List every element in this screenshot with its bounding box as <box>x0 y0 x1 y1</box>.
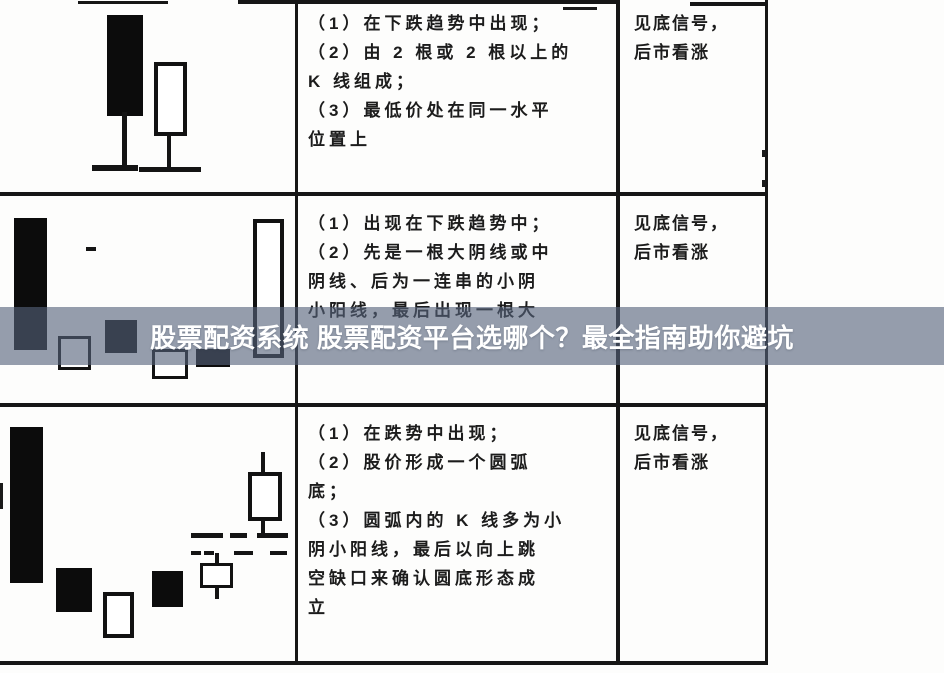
pattern-description: （1）在下跌趋势中出现；（2）由 2 根或 2 根以上的K 线组成；（3）最低价… <box>308 9 572 154</box>
pattern-description-line: （1）出现在下跌趋势中； <box>308 209 552 238</box>
pattern-description-line: （2）股价形成一个圆弧 <box>308 448 565 477</box>
pattern-description-line: 阴小阳线，最后以向上跳 <box>308 535 565 564</box>
pattern-description-line: 阴线、后为一连串的小阴 <box>308 267 552 296</box>
pattern-signal-line: 后市看涨 <box>634 38 729 67</box>
filled-candle <box>10 427 43 583</box>
hollow-candle <box>103 592 134 638</box>
pattern-description-line: 底； <box>308 477 565 506</box>
hollow-candle <box>200 563 233 588</box>
promo-banner-text: 股票配资系统 股票配资平台选哪个？最全指南助你避坑 <box>150 318 794 355</box>
scan-artifact <box>0 483 3 509</box>
baseline <box>139 167 201 172</box>
table-border-top <box>78 1 168 4</box>
wick <box>122 112 127 168</box>
pattern-signal: 见底信号，后市看涨 <box>634 209 729 267</box>
pattern-description-line: 位置上 <box>308 125 572 154</box>
wick <box>215 587 219 599</box>
article-hero-image: （1）在下跌趋势中出现；（2）由 2 根或 2 根以上的K 线组成；（3）最低价… <box>0 0 944 673</box>
pattern-description-line: （2）先是一根大阴线或中 <box>308 238 552 267</box>
promo-banner: 股票配资系统 股票配资平台选哪个？最全指南助你避坑 <box>0 307 944 365</box>
table-border-bottom <box>0 661 768 665</box>
dash <box>86 247 96 251</box>
pattern-signal: 见底信号，后市看涨 <box>634 9 729 67</box>
scan-artifact <box>762 150 766 157</box>
pattern-description-line: （1）在下跌趋势中出现； <box>308 9 572 38</box>
table-border-row1 <box>0 192 768 196</box>
filled-candle <box>152 571 183 607</box>
pattern-signal-line: 后市看涨 <box>634 238 729 267</box>
pattern-description-line: （2）由 2 根或 2 根以上的 <box>308 38 572 67</box>
pattern-signal-line: 见底信号， <box>634 209 729 238</box>
pattern-signal-line: 见底信号， <box>634 419 729 448</box>
pattern-signal: 见底信号，后市看涨 <box>634 419 729 477</box>
wick <box>261 452 265 474</box>
pattern-description-line: （3）最低价处在同一水平 <box>308 96 572 125</box>
table-border-row2 <box>0 403 768 407</box>
pattern-signal-line: 后市看涨 <box>634 448 729 477</box>
pattern-description-line: 立 <box>308 593 565 622</box>
filled-candle <box>56 568 92 612</box>
pattern-description: （1）在跌势中出现；（2）股价形成一个圆弧底；（3）圆弧内的 K 线多为小阴小阳… <box>308 419 565 622</box>
dash <box>230 533 247 538</box>
wick <box>261 519 265 535</box>
dash <box>204 551 214 555</box>
table-border-top <box>690 2 768 6</box>
dash <box>234 551 253 555</box>
wick <box>167 134 171 170</box>
pattern-description-line: （3）圆弧内的 K 线多为小 <box>308 506 565 535</box>
dash <box>191 533 223 538</box>
hollow-candle <box>248 472 282 521</box>
pattern-description-line: K 线组成； <box>308 67 572 96</box>
baseline <box>92 165 138 171</box>
filled-candle <box>107 15 143 116</box>
pattern-description-line: （1）在跌势中出现； <box>308 419 565 448</box>
pattern-description-line: 空缺口来确认圆底形态成 <box>308 564 565 593</box>
dash <box>191 551 201 555</box>
dash <box>270 551 287 555</box>
pattern-signal-line: 见底信号， <box>634 9 729 38</box>
hollow-candle <box>154 62 187 136</box>
scan-artifact <box>762 180 766 187</box>
